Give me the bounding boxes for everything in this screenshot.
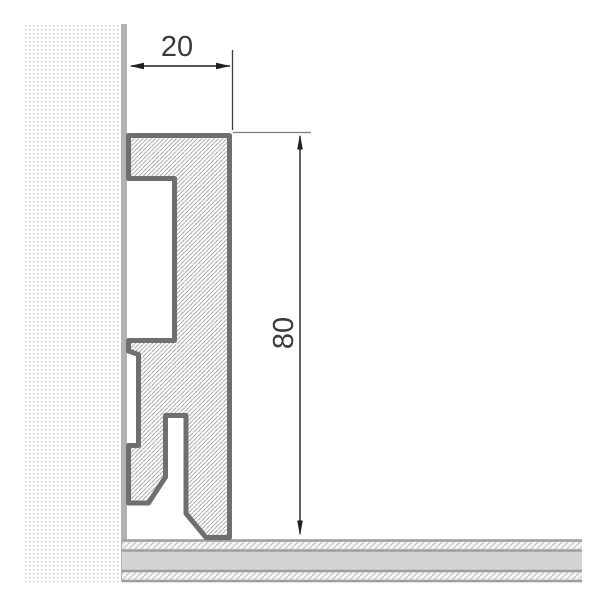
height-dimension-label: 80	[268, 317, 300, 349]
width-arrow-left	[130, 63, 145, 69]
technical-drawing-canvas: 20 80	[0, 0, 604, 604]
floor-section	[122, 540, 582, 583]
height-arrow-bottom	[297, 521, 303, 536]
height-dimension: 80	[233, 133, 311, 536]
skirting-profile-drawing: 20 80	[0, 0, 604, 604]
width-arrow-right	[216, 63, 231, 69]
wall-dotted-area	[24, 24, 121, 582]
skirting-profile-body	[129, 136, 230, 538]
floor-bottom-hatch-layer	[122, 572, 582, 580]
width-dimension: 20	[130, 31, 233, 130]
skirting-profile	[129, 136, 230, 538]
floor-top-hatch-layer	[122, 542, 582, 550]
floor-middle-layer	[122, 552, 582, 571]
wall-section	[24, 24, 127, 582]
height-arrow-top	[297, 135, 303, 150]
width-dimension-label: 20	[161, 31, 193, 63]
